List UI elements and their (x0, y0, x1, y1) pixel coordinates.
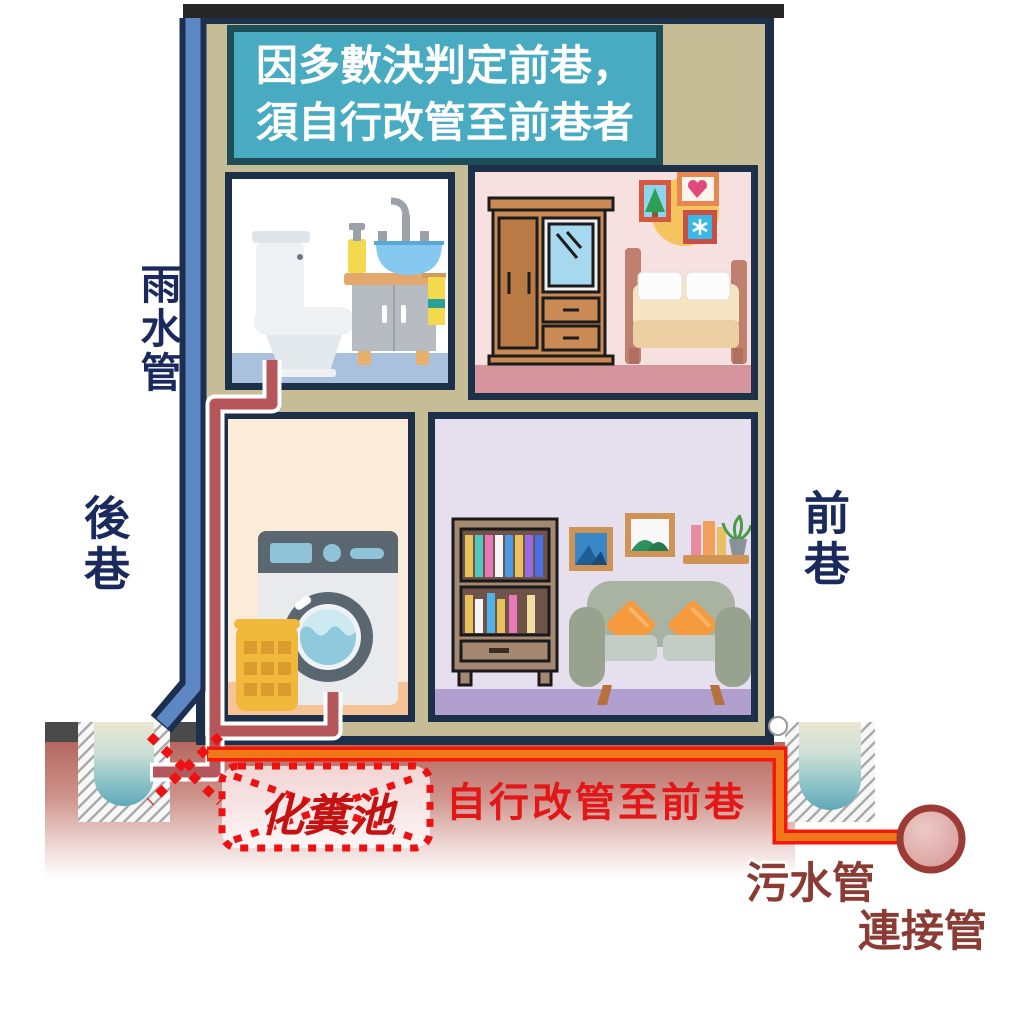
front-alley-drain (785, 722, 875, 822)
title-banner: 因多數決判定前巷， 須自行改管至前巷者 (227, 25, 663, 165)
label-rain-pipe: 雨水管 (127, 263, 187, 395)
room-bathroom (225, 172, 455, 390)
vanity-sink (344, 201, 446, 365)
living-illustration (435, 419, 751, 715)
label-sewage-pipe: 污水管 (746, 849, 875, 911)
label-connection-pipe: 連接管 (858, 897, 987, 959)
bathroom-illustration (232, 179, 448, 383)
laundry-basket (234, 619, 300, 711)
label-back-alley: 後巷 (71, 494, 137, 596)
back-alley-drain (78, 722, 170, 822)
bedroom-illustration (475, 172, 751, 393)
sofa (569, 581, 751, 705)
banner-line-2: 須自行改管至前巷者 (256, 95, 634, 152)
room-laundry (221, 412, 415, 722)
label-septic-tank: 化糞池 (222, 779, 430, 844)
connection-pipe-circle (900, 808, 962, 870)
room-bedroom (468, 165, 758, 400)
picture-frame-hills (625, 513, 675, 557)
drain-water (799, 722, 861, 810)
banner-line-1: 因多數決判定前巷， (256, 38, 634, 95)
wardrobe (489, 198, 613, 364)
laundry-illustration (228, 419, 408, 715)
toilet (252, 231, 354, 377)
roof-bar (183, 4, 784, 18)
label-reroute-note: 自行改管至前巷 (446, 770, 747, 828)
room-living (428, 412, 758, 722)
label-front-alley: 前巷 (791, 489, 857, 591)
drain-water (94, 722, 154, 806)
bed (625, 248, 747, 364)
wall-shelf (683, 515, 751, 564)
diagram-stage: 因多數決判定前巷， 須自行改管至前巷者 雨水管 後巷 前巷 化糞池 自行改管至前… (0, 0, 1020, 1031)
picture-frame-mountain (569, 527, 613, 571)
